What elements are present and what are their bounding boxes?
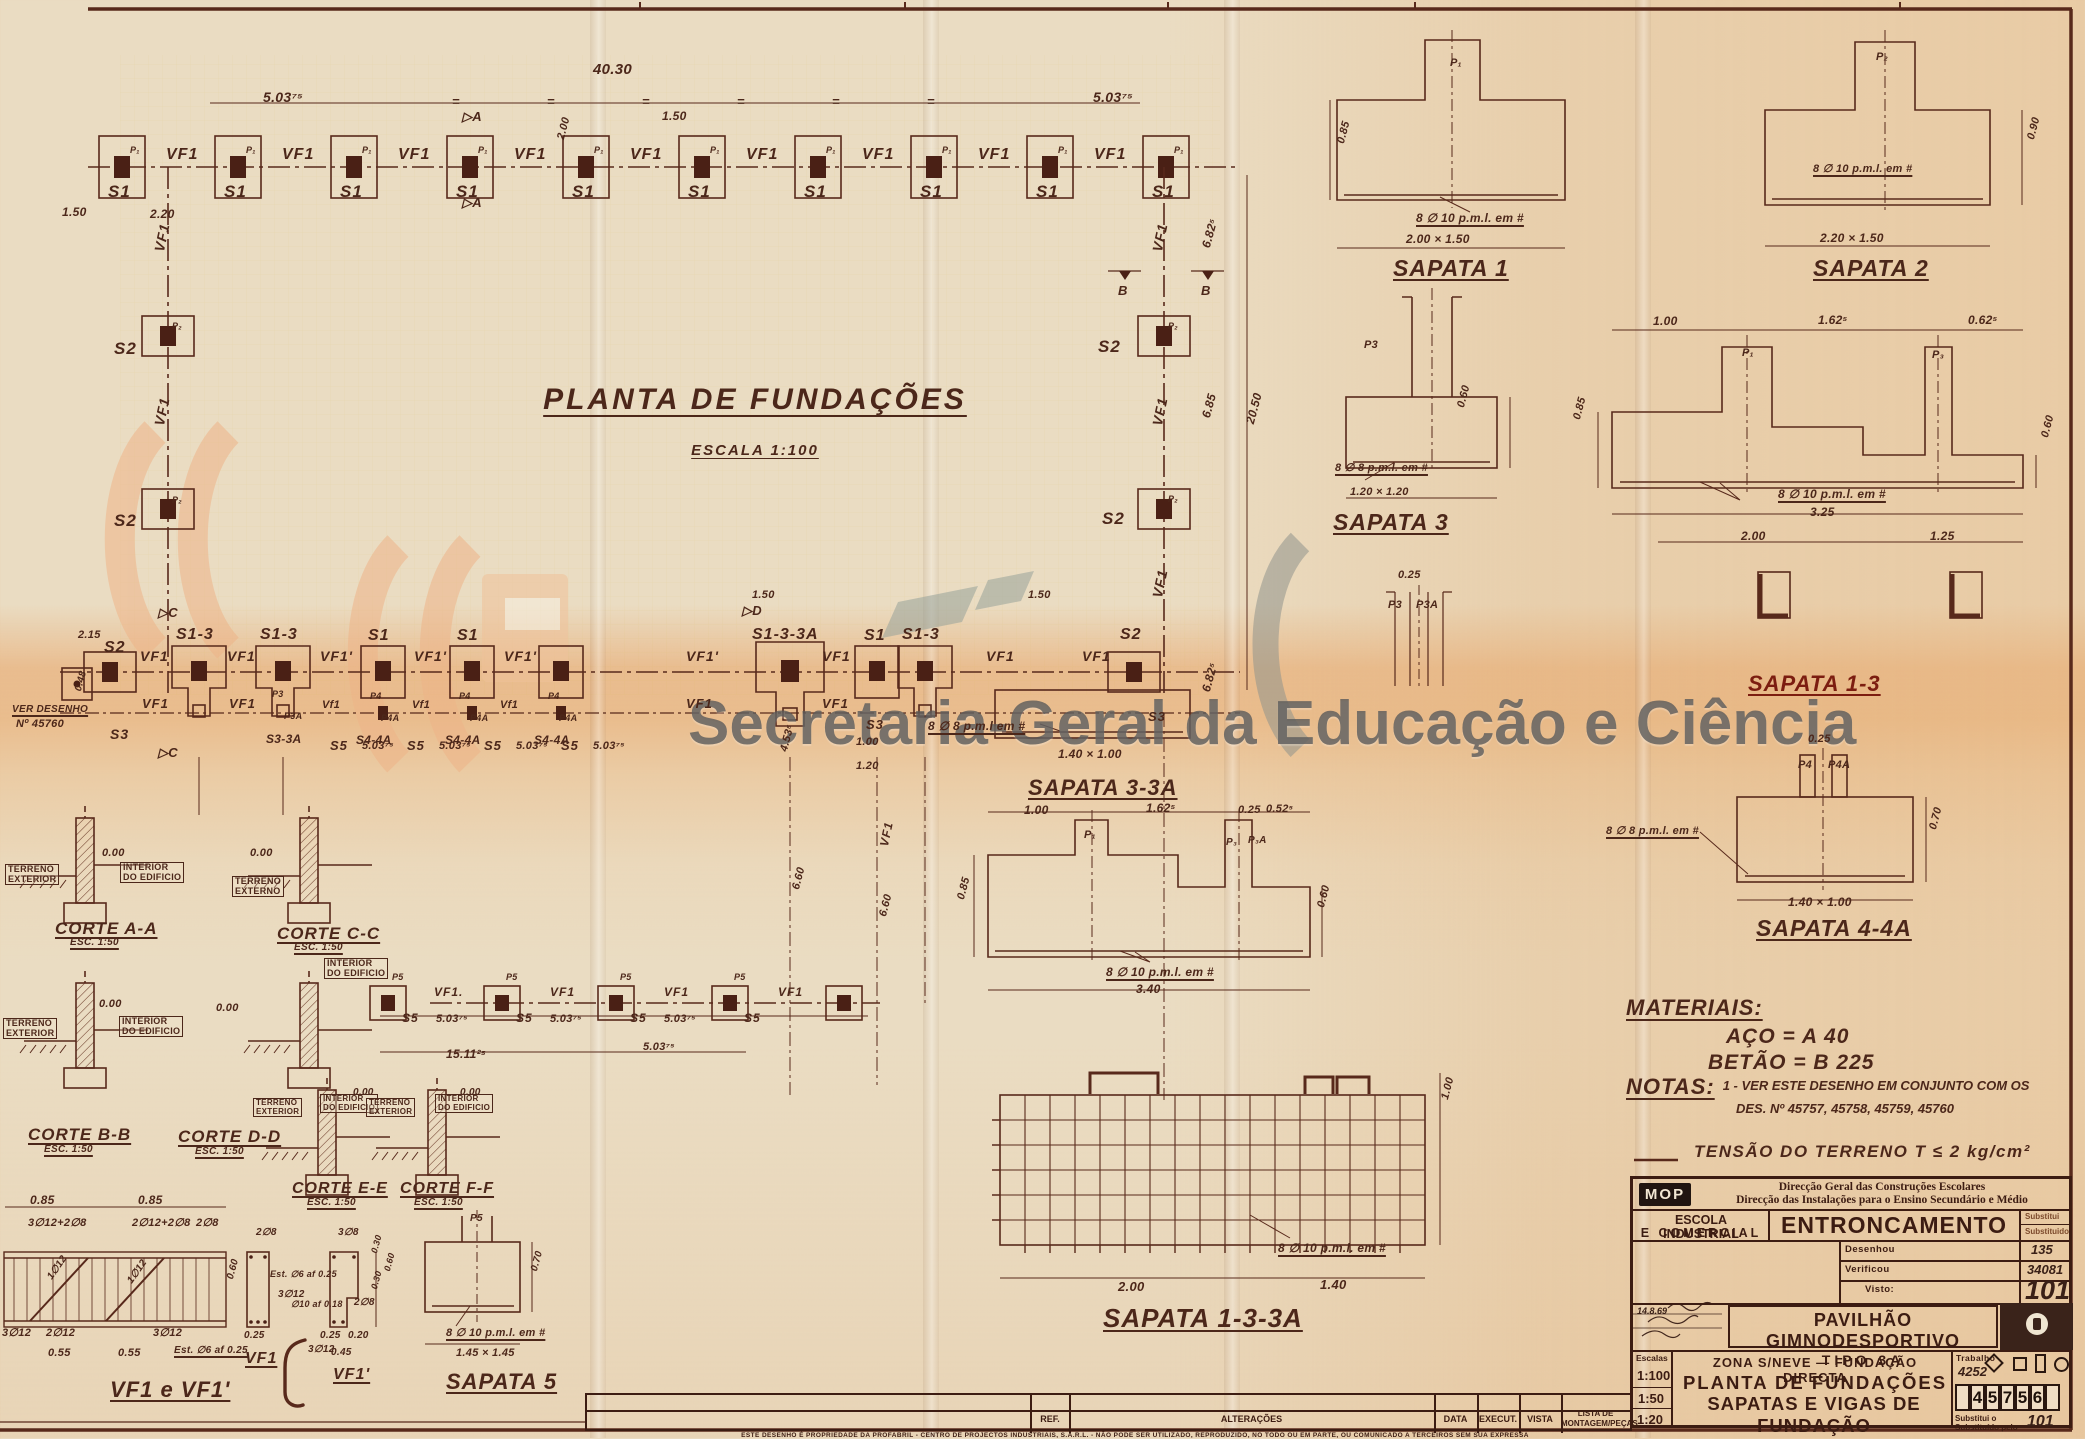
drawing-annotation: VF1 [986,649,1015,664]
drawing-annotation: 1.62⁵ [1146,802,1176,815]
mop-logo: MOP [1639,1183,1691,1206]
drawing-annotation: S1-3 [176,626,214,643]
drawing-annotation: 2.20 [150,208,175,221]
ref-note: VER DESENHO [12,705,88,716]
drawing-annotation: S2 [1102,510,1125,528]
escala-1: 1:100 [1637,1368,1670,1383]
drawing-annotation: 2.15 [78,630,101,642]
drawing-number-digit [2045,1384,2060,1411]
drawing-annotation: 3∅8 [338,1228,359,1239]
drawing-annotation: 0.25 [1238,805,1261,817]
drawing-annotation: 1.20 × 1.20 [1350,487,1409,499]
drawing-annotation: 8 ∅ 8 p.m.l. em # [1606,826,1699,838]
substitui-o-label: Substitui o [1955,1414,1996,1423]
drawing-annotation: S5 [630,1012,647,1025]
drawing-number-digit [1955,1384,1970,1411]
drawing-annotation: 3.25 [1810,506,1835,519]
drawing-annotation: 0.45 [331,1348,352,1359]
drawing-annotation: 3∅12 [153,1328,182,1340]
drawing-annotation: 2∅8 [196,1218,219,1230]
drawing-annotation: CORTE F-F [400,1180,494,1197]
drawing-annotation: VF1' [686,649,719,664]
drawing-annotation: P4A [470,714,488,724]
drawing-annotation: INTERIOR DO EDIFICIO [119,1016,183,1037]
sapata44a-title: SAPATA 4-4A [1756,916,1912,941]
drawing-annotation: VF1 [862,146,894,163]
drawing-annotation: 5.03⁷⁵ [436,1014,468,1026]
substituido-label: Substituido [2025,1227,2069,1236]
sapata13-title: SAPATA 1-3 [1748,672,1881,696]
footer-lista-line2: MONTAGEM/PEÇAS [1561,1419,1630,1428]
drawing-annotation: P₁ [362,146,372,156]
plan-title: PLANTA DE FUNDAÇÕES [505,383,1005,417]
drawing-annotation: CORTE B-B [28,1126,131,1144]
shape-circle-icon [2054,1357,2069,1372]
drawing-annotation: Est. ∅6 af 0.25 [174,1346,248,1357]
drawing-annotation: 5.03⁷⁵ [664,1014,696,1026]
drawing-number-digit: 4 [1970,1384,1985,1411]
drawing-annotation: S5 [561,739,579,753]
drawing-annotation: 0.25 [320,1331,341,1342]
drawing-annotation: P5 [734,973,746,983]
drawing-annotation: S1 [1152,183,1175,201]
drawing-annotation: 1.40 × 1.00 [1058,748,1122,761]
drawing-annotation: P₁ [1058,146,1068,156]
section-title: CORTE A-A [55,920,158,938]
drawing-annotation: S5 [407,739,425,753]
drawing-annotation: ESC. 1:50 [294,943,343,954]
drawing-annotation: ESC. 1:50 [70,938,119,949]
drawing-annotation: VF1 [1082,649,1111,664]
drawing-annotation: S1 [572,183,595,201]
drawing-annotation: P4 [548,692,560,702]
profabril-logo-icon [2026,1313,2048,1335]
drawing-annotation: S1-3 [902,626,940,643]
drawing-annotation: B [1118,284,1128,298]
school-line2: E COMERCIAL [1637,1226,1765,1240]
drawing-annotation: P5 [392,973,404,983]
shape-square-icon [2013,1357,2027,1371]
substitui-label: Substitui [2025,1212,2059,1221]
drawing-annotation: P₂ [1168,322,1178,332]
drawing-annotation: S2 [114,340,137,358]
drawing-annotation: P₁ [246,146,256,156]
sapata33a-title: SAPATA 3-3A [1028,776,1178,800]
footer-vista: VISTA [1519,1414,1561,1424]
footer-execut: EXECUT. [1477,1414,1519,1424]
sapata133a-title: SAPATA 1-3-3A [1103,1304,1303,1332]
drawing-annotation: VF1 [1094,146,1126,163]
drawing-annotation: VF1 [282,146,314,163]
drawing-annotation: VF1 [978,146,1010,163]
dim-total-top: 40.30 [593,62,632,78]
drawing-annotation: S1 [340,183,363,201]
drawing-annotation: VF1 [822,649,851,664]
drawing-annotation: 0.85 [138,1194,163,1207]
drawing-annotation: VF1' [320,649,353,664]
drawing-annotation: 5.03⁷⁵ [550,1014,582,1026]
escala-2: 1:50 [1638,1391,1664,1406]
footer-data: DATA [1434,1414,1477,1424]
drawing-annotation: P₁ [1174,146,1184,156]
drawing-annotation: P3A [1416,600,1438,612]
drawing-annotation: 2∅8 [256,1228,277,1239]
drawing-annotation: 3∅12+2∅8 [28,1218,87,1230]
drawing-annotation: P₃A [1248,836,1267,847]
drawing-annotation: P3A [284,712,302,722]
drawing-annotation: S5 [484,739,502,753]
drawing-annotation: S1-3 [260,626,298,643]
drawing-annotation: INTERIOR DO EDIFICIO [324,958,388,979]
drawing-annotation: 8 ∅ 10 p.m.l. em # [446,1328,545,1340]
drawing-annotation: P₁ [710,146,720,156]
drawing-annotation: S1 [457,627,479,644]
notas-item1-refs: DES. Nº 45757, 45758, 45759, 45760 [1736,1101,2029,1116]
scanned-foundation-plan-sheet: { "sheet": { "plan_title": "PLANTA DE FU… [0,0,2085,1438]
drawing-annotation: VF1 [514,146,546,163]
drawing-annotation: 1.40 [1320,1278,1347,1292]
drawing-annotation: VF1 [142,697,169,711]
notas-heading: NOTAS: [1626,1074,1715,1100]
drawing-annotation: P₁ [1084,830,1096,842]
org-line1: Direcção Geral das Construções Escolares [1693,1181,2071,1193]
drawing-annotation: 0.52⁵ [1266,804,1293,816]
drawing-annotation: TERRENO EXTERIOR [5,864,59,885]
drawing-annotation: 2.00 [1741,530,1766,543]
drawing-annotation: Vf1 [500,700,518,712]
drawing-annotation: ESC. 1:50 [44,1145,93,1156]
terrain-tension-note: TENSÃO DO TERRENO T ≤ 2 kg/cm² [1694,1142,2031,1162]
drawing-annotation: 0.20 [348,1331,369,1342]
drawing-number-digit: 7 [2000,1384,2015,1411]
drawing-annotation: 8 ∅ 8 p.m.l. em # [1335,463,1428,475]
plan-title-block: PLANTA DE FUNDAÇÕES ESCALA 1:100 [505,383,1005,460]
drawing-annotation: 5.03⁷⁵ [1093,90,1133,105]
drawing-annotation: P4 [370,692,382,702]
drawing-annotation: CORTE E-E [292,1180,388,1197]
drawing-annotation: 8 ∅ 8 p.m.l em # [928,720,1025,733]
drawing-annotation: Vf1 [322,700,340,712]
drawing-annotation: P3 [272,690,284,700]
drawing-annotation: P₂ [172,322,182,332]
drawing-annotation: 1.50 [1028,590,1051,602]
drawing-annotation: ▷C [158,746,178,760]
drawing-annotation: P₁ [130,146,140,156]
materials-heading: MATERIAIS: [1626,995,1874,1021]
drawing-annotation: 15.11²⁵ [446,1048,486,1061]
drawing-annotation: VF1. [434,986,463,999]
drawing-annotation: VF1' [414,649,447,664]
drawing-annotation: = [737,95,745,109]
drawing-annotation: 1.40 × 1.00 [1788,896,1852,909]
drawing-annotation: S2 [104,639,126,656]
trabalho-value: 4252 [1958,1364,1987,1379]
drawing-annotation: 2∅8 [354,1298,375,1309]
drawing-annotation: 1.50 [662,110,687,123]
drawing-annotation: 1.45 × 1.45 [456,1348,515,1360]
drawing-annotation: TERRENO EXTERIOR [3,1018,57,1039]
drawing-annotation: P₁ [826,146,836,156]
drawing-annotation: 0.25 [1398,570,1421,582]
drawing-annotation: Nº 45760 [16,719,64,731]
drawing-annotation: P5 [470,1214,483,1225]
drawing-annotation: = [547,95,555,109]
drawing-annotation: 0.85 [30,1194,55,1207]
drawing-annotation: S5 [330,739,348,753]
drawing-annotation: CORTE C-C [277,925,380,943]
drawing-annotation: S1 [368,627,390,644]
drawing-annotation: 5.03⁷⁵ [362,741,394,753]
drawing-annotation: S2 [1120,626,1142,643]
drawing-annotation: VF1 [822,697,849,711]
drawing-annotation: = [832,95,840,109]
drawing-annotation: S5 [744,1012,761,1025]
materials-note: MATERIAIS: AÇO = A 40 BETÃO = B 225 [1626,995,1874,1075]
revision-table: REF. ALTERAÇÕES DATA EXECUT. VISTA LISTA… [585,1393,1632,1431]
drawing-annotation: 5.03⁷⁵ [263,90,303,105]
drawing-annotation: 1.20 [856,761,879,773]
drawing-annotation: 0.55 [48,1348,71,1360]
sheet-number: 101 [2025,1275,2070,1306]
drawing-number-digit: 5 [2015,1384,2030,1411]
drawing-annotation: ▷A [462,110,482,124]
drawing-annotation: ∅10 af 0.18 [291,1300,343,1310]
visto-label: Visto: [1865,1284,1894,1295]
drawing-annotation: S1 [864,627,886,644]
drawing-annotation: CORTE D-D [178,1128,281,1146]
drawing-annotation: TERRENO EXTERNO [232,876,284,897]
drawing-annotation: S1 [688,183,711,201]
materials-betao: BETÃO = B 225 [1708,1051,1874,1075]
beam-label-vf1: VF1 [166,146,198,163]
drawing-annotation: 0.00 [99,999,122,1011]
drawing-annotation: VF1 [664,986,689,999]
drawing-annotation: P3 [1364,340,1378,352]
drawing-annotation: 0.25 [244,1331,265,1342]
drawing-annotation: VF1 [686,697,713,711]
drawing-annotation: S1 [804,183,827,201]
sapata1-title: SAPATA 1 [1393,256,1509,281]
drawing-annotation: 2.20 × 1.50 [1820,232,1884,245]
drawing-annotation: 2.00 × 1.50 [1406,233,1470,246]
drawing-annotation: 1.00 [856,737,879,749]
drawing-annotation: S1-3-3A [752,626,819,643]
drawing-annotation: 2∅12+2∅8 [132,1218,191,1230]
drawing-annotation: P4 [1798,760,1812,772]
drawing-annotation: 5.03⁷⁵ [593,741,625,753]
notas-note: NOTAS:1 - VER ESTE DESENHO EM CONJUNTO C… [1626,1074,2029,1116]
drawing-annotation: 8 ∅ 10 p.m.l. em # [1778,488,1886,501]
location-name: ENTRONCAMENTO [1771,1212,2017,1239]
drawing-annotation: VF1' [504,649,537,664]
drawing-annotation: ▷C [158,606,178,620]
drawing-annotation: = [642,95,650,109]
drawing-annotation: VF1 [746,146,778,163]
drawing-annotation: VF1 [140,649,169,664]
drawing-annotation: S2 [1098,338,1121,356]
drawing-annotation: S2 [114,512,137,530]
sapata5-title: SAPATA 5 [446,1370,557,1394]
drawing-annotation: VF1 [229,697,256,711]
drawing-annotation: P₁ [1450,58,1462,70]
drawing-annotation: 0.62⁵ [1968,314,1998,327]
project-cell: PAVILHÃO GIMNODESPORTIVO TIPO 3A [1728,1305,1998,1348]
drawing-annotation: S1 [456,183,479,201]
drawing-annotation: VF1 [398,146,430,163]
drawing-annotation: P5 [620,973,632,983]
drawing-annotation: S5 [402,1012,419,1025]
drawing-annotation: P4 [459,692,471,702]
drawing-annotation: P₂ [1876,52,1888,64]
footer-alteracoes: ALTERAÇÕES [1069,1414,1434,1424]
drawing-annotation: S1 [1036,183,1059,201]
project-line1: PAVILHÃO GIMNODESPORTIVO [1730,1310,1996,1352]
drawing-annotation: S1 [224,183,247,201]
drawing-annotation: 0.25 [1808,734,1831,746]
drawing-annotation: P₂ [172,496,182,506]
drawing-annotation: VF1 [245,1350,277,1367]
drawing-annotation: Vf1 [412,700,430,712]
drawing-annotation: VF1' [333,1366,370,1383]
drawing-annotation: P3 [1388,600,1402,612]
drawing-annotation: 8 ∅ 10 p.m.l. em # [1813,164,1912,176]
drawing-annotation: ESC. 1:50 [195,1147,244,1158]
drawing-annotation: 1.50 [752,590,775,602]
drawing-annotation: VF1 [778,986,803,999]
drawing-annotation: ▷D [742,604,762,618]
drawing-annotation: S3 [1148,710,1166,724]
footer-lista-line1: LISTA DE [1561,1409,1630,1418]
drawing-annotation: S3-3A [266,733,302,746]
drawing-number-digit: 5 [1985,1384,2000,1411]
drawing-annotation: P₁ [942,146,952,156]
drawing-annotation: P₂ [1168,495,1178,505]
drawing-annotation: 2.00 [1118,1280,1145,1294]
desenhou-label: Desenhou [1845,1244,1895,1255]
title-block: MOP Direcção Geral das Construções Escol… [1630,1176,2072,1428]
beam-detail-title: VF1 e VF1' [110,1378,230,1402]
org-line2: Direcção das Instalações para o Ensino S… [1693,1194,2071,1206]
drawing-annotation: S5 [516,1012,533,1025]
sapata2-title: SAPATA 2 [1813,256,1929,281]
drawing-annotation: S3 [110,727,129,742]
drawing-annotation: 5.03⁷⁵ [643,1042,675,1054]
drawing-annotation: 0.00 [250,848,273,860]
drawing-annotation: S3 [866,718,884,732]
drawing-annotation: INTERIOR DO EDIFICIO [120,862,184,883]
notas-item1: 1 - VER ESTE DESENHO EM CONJUNTO COM OS [1723,1078,2030,1093]
drawing-annotation: = [452,95,460,109]
drawing-annotation: VF1 [227,649,256,664]
drawing-annotation: 8 ∅ 10 p.m.l. em # [1278,1242,1386,1255]
drawing-annotation: S1 [920,183,943,201]
drawing-annotation: TERRENO EXTERIOR [253,1098,302,1117]
drawing-annotation: 0.55 [118,1348,141,1360]
drawing-annotation: P₃ [1226,838,1237,849]
escala-3: 1:20 [1637,1412,1663,1427]
drawing-title-line2: SAPATAS E VIGAS DE FUNDAÇÃO [1671,1393,1957,1437]
drawing-annotation: 1.00 [1024,804,1049,817]
drawing-annotation: B [1201,284,1211,298]
drawing-annotation: 2∅12 [46,1328,75,1340]
drawing-annotation: 1.00 [1653,315,1678,328]
substituido-pelo-label: Substituído pelo [1955,1423,2018,1432]
drawing-annotation: 8 ∅ 10 p.m.l. em # [1106,966,1214,979]
drawing-annotation: 1.50 [62,206,87,219]
drawing-annotation: P₁ [594,146,604,156]
sapata3-title: SAPATA 3 [1333,510,1449,535]
drawing-annotation: ESC. 1:50 [414,1198,463,1209]
drawing-annotation: 0.00 [460,1088,481,1099]
drawing-annotation: P4A [1828,760,1850,772]
drawing-annotation: 0.00 [216,1003,239,1015]
substituido-pelo-value: 101 [2027,1413,2054,1431]
drawing-annotation: P₁ [1742,348,1754,360]
drawing-annotation: 0.00 [102,848,125,860]
drawing-annotation: 5.03⁷⁵ [439,741,471,753]
drawing-annotation: Est. ∅6 af 0.25 [270,1270,337,1280]
drawing-annotation: VF1 [630,146,662,163]
drawing-annotation: 1.25 [1930,530,1955,543]
drawing-annotation: P4A [559,714,577,724]
materials-aco: AÇO = A 40 [1726,1025,1874,1049]
drawing-annotation: 5.03⁷⁵ [516,741,548,753]
footer-ref: REF. [1030,1414,1070,1424]
drawing-annotation: 1.62⁵ [1818,314,1848,327]
escalas-label: Escalas [1636,1353,1668,1363]
drawing-annotation: 3∅12 [2,1328,31,1340]
drawing-title-line1: PLANTA DE FUNDAÇÕES [1681,1372,1949,1394]
drawing-annotation: P5 [506,973,518,983]
drawing-annotation: P₃ [1932,350,1944,362]
drawing-annotation: 8 ∅ 10 p.m.l. em # [1416,212,1524,225]
shape-rect-icon [2035,1354,2046,1373]
desenhou-value: 135 [2031,1242,2053,1257]
plan-scale: ESCALA 1:100 [691,442,819,459]
drawing-annotation: TERRENO EXTERIOR [366,1098,415,1117]
profabril-logo-band [2000,1303,2073,1350]
drawing-number-digit: 6 [2030,1384,2045,1411]
drawing-annotation: VF1 [550,986,575,999]
drawing-annotation: ESC. 1:50 [307,1198,356,1209]
drawing-annotation: 3.40 [1136,983,1161,996]
drawing-annotation: = [927,95,935,109]
drawing-annotation: P4A [381,714,399,724]
drawing-annotation: P₁ [478,146,488,156]
date-value: 14.8.69 [1637,1306,1667,1316]
footing-label-s1: S1 [108,183,131,201]
verificou-label: Verificou [1845,1264,1890,1275]
